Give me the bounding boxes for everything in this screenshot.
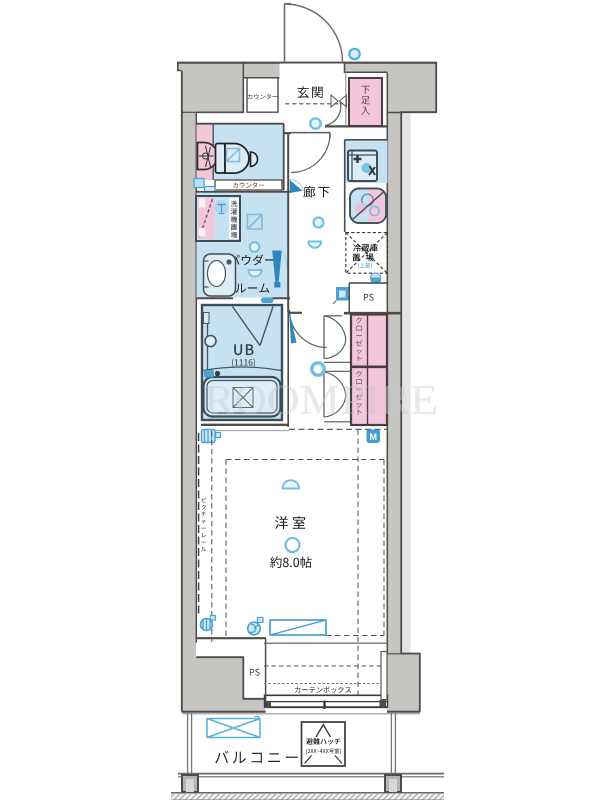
svg-text:M: M [369,432,377,442]
svg-text:ROOMPIRE: ROOMPIRE [204,378,438,424]
